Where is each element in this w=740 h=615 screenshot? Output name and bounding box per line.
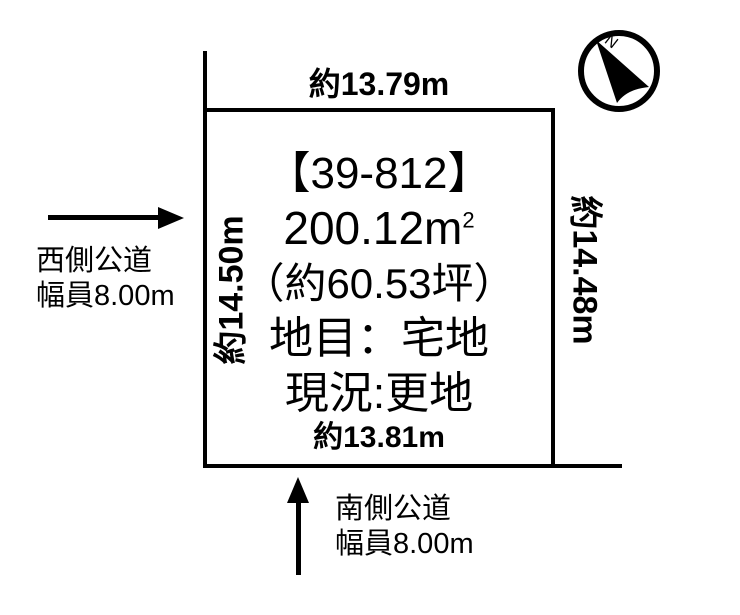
west-road-arrowhead-icon bbox=[158, 207, 184, 229]
dimension-right: 約14.48m bbox=[564, 195, 613, 344]
parcel-id: 【39-812】 bbox=[203, 146, 555, 201]
parcel-status: 現況:更地 bbox=[203, 366, 555, 421]
south-road-arrow-icon bbox=[296, 500, 301, 575]
parcel-area-tsubo: （約60.53坪） bbox=[203, 256, 555, 311]
south-road-name: 南側公道 bbox=[335, 492, 474, 527]
west-road-arrow-icon bbox=[48, 215, 166, 220]
dimension-top: 約13.79m bbox=[203, 66, 555, 102]
parcel-boundary-north-line bbox=[203, 108, 555, 112]
west-road-label: 西側公道 幅員8.00m bbox=[36, 244, 175, 314]
south-road-width: 幅員8.00m bbox=[335, 527, 474, 562]
parcel-boundary-south-line bbox=[203, 464, 622, 468]
parcel-area-sqm-exponent: 2 bbox=[462, 208, 474, 233]
parcel-land-category: 地目：宅地 bbox=[203, 311, 555, 366]
south-road-label: 南側公道 幅員8.00m bbox=[335, 492, 474, 562]
dimension-bottom: 約13.81m bbox=[203, 421, 555, 455]
west-road-name: 西側公道 bbox=[36, 244, 175, 279]
compass-needle bbox=[596, 40, 649, 103]
land-plot-diagram: 約13.79m 約13.81m 約14.50m 約14.48m 【39-812】… bbox=[0, 0, 740, 615]
parcel-area-sqm: 200.12m2 bbox=[203, 201, 555, 256]
north-compass-icon: N bbox=[574, 27, 666, 119]
west-road-width: 幅員8.00m bbox=[36, 279, 175, 314]
parcel-area-sqm-value: 200.12m bbox=[283, 202, 462, 254]
